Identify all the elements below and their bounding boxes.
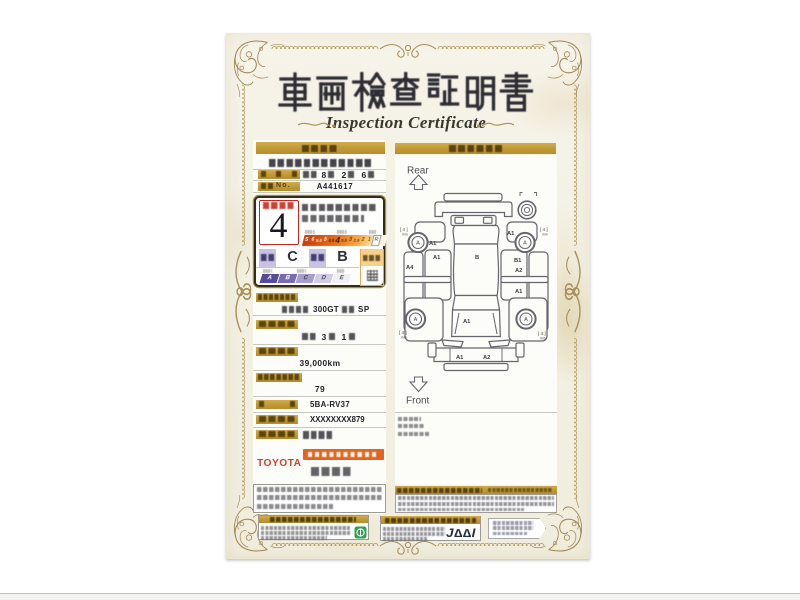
svg-text:mm: mm bbox=[402, 233, 408, 237]
svg-text:A1: A1 bbox=[507, 231, 515, 237]
svg-text:A: A bbox=[416, 241, 420, 247]
svg-text:A1: A1 bbox=[515, 289, 523, 295]
svg-text:A1: A1 bbox=[463, 319, 471, 325]
svg-text:A2: A2 bbox=[515, 268, 522, 274]
svg-text:Front: Front bbox=[406, 396, 430, 407]
svg-text:[ 4 ]: [ 4 ] bbox=[540, 227, 548, 232]
svg-text:[ 4 ]: [ 4 ] bbox=[399, 330, 407, 335]
svg-text:B: B bbox=[475, 255, 479, 261]
svg-text:A1: A1 bbox=[429, 241, 437, 247]
svg-text:mm: mm bbox=[401, 336, 407, 340]
svg-text:[ 4 ]: [ 4 ] bbox=[538, 331, 546, 336]
svg-text:A: A bbox=[524, 317, 528, 323]
svg-text:mm: mm bbox=[540, 337, 546, 341]
svg-text:A1: A1 bbox=[433, 255, 441, 261]
svg-text:A4: A4 bbox=[406, 265, 414, 271]
svg-text:mm: mm bbox=[542, 233, 548, 237]
svg-text:A: A bbox=[523, 241, 527, 247]
svg-text:[ 4 ]: [ 4 ] bbox=[400, 227, 408, 232]
svg-text:A2: A2 bbox=[483, 355, 490, 361]
svg-text:A1: A1 bbox=[456, 355, 464, 361]
svg-text:A: A bbox=[414, 317, 418, 323]
svg-text:B1: B1 bbox=[514, 258, 522, 264]
